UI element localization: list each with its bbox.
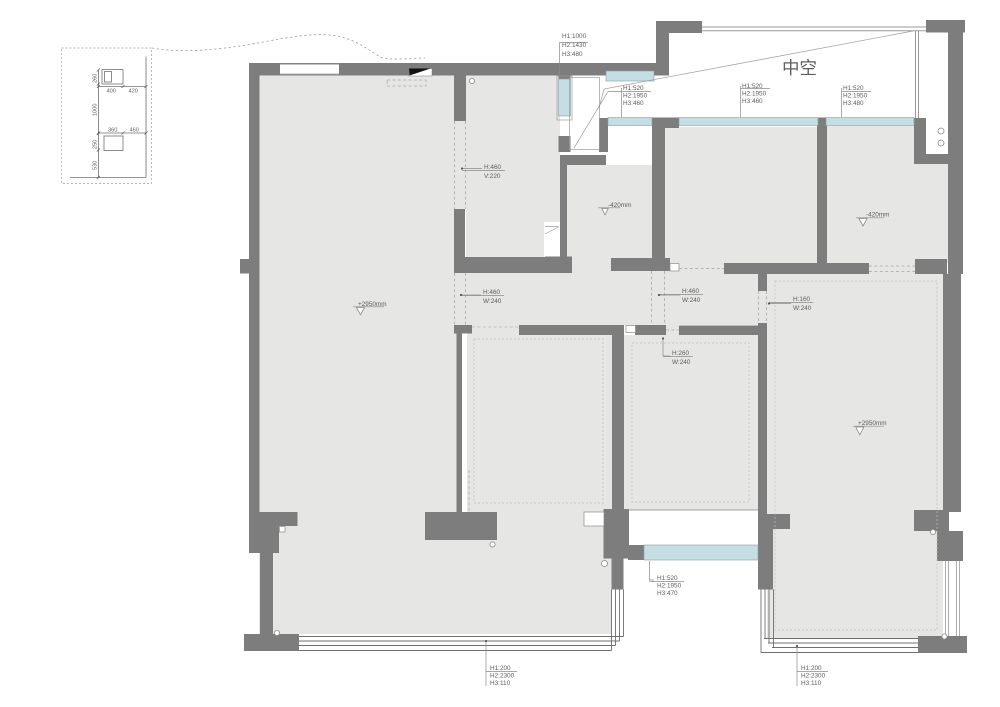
svg-text:H:260: H:260 (672, 350, 689, 357)
svg-text:H3:460: H3:460 (742, 98, 763, 105)
svg-text:+2950mm: +2950mm (858, 420, 887, 427)
svg-text:530: 530 (92, 161, 98, 170)
svg-text:V:220: V:220 (484, 173, 501, 180)
svg-text:H1:520: H1:520 (657, 575, 678, 582)
svg-text:H1:200: H1:200 (490, 665, 511, 672)
svg-text:-420mm: -420mm (866, 212, 889, 219)
svg-text:H:160: H:160 (793, 296, 810, 303)
svg-text:1000: 1000 (92, 104, 98, 116)
svg-text:+2950mm: +2950mm (358, 301, 387, 308)
svg-text:H2:2300: H2:2300 (801, 673, 826, 680)
svg-text:400: 400 (107, 89, 116, 95)
svg-text:H2:1950: H2:1950 (657, 583, 682, 590)
svg-text:H2:1950: H2:1950 (623, 93, 648, 100)
svg-text:W:240: W:240 (682, 297, 701, 304)
svg-text:H:460: H:460 (483, 289, 500, 296)
svg-text:H3:480: H3:480 (562, 51, 583, 58)
svg-text:-420mm: -420mm (608, 202, 631, 209)
svg-text:H1:520: H1:520 (623, 85, 644, 92)
svg-text:H1:520: H1:520 (742, 83, 763, 90)
svg-text:250: 250 (92, 140, 98, 149)
svg-text:H:460: H:460 (484, 164, 501, 171)
svg-text:H2:1430: H2:1430 (562, 42, 587, 49)
svg-text:H3:460: H3:460 (623, 100, 644, 107)
svg-text:H3:110: H3:110 (490, 680, 511, 687)
svg-text:360: 360 (108, 127, 117, 133)
svg-text:H1:1000: H1:1000 (562, 33, 587, 40)
svg-text:W:240: W:240 (672, 359, 691, 366)
svg-text:H3:110: H3:110 (801, 680, 822, 687)
svg-text:260: 260 (92, 74, 98, 83)
svg-text:H1:200: H1:200 (801, 665, 822, 672)
svg-text:H2:2300: H2:2300 (490, 673, 515, 680)
svg-text:H1:520: H1:520 (843, 85, 864, 92)
svg-text:W:240: W:240 (793, 305, 812, 312)
svg-text:H2:1950: H2:1950 (843, 93, 868, 100)
svg-text:H:460: H:460 (682, 288, 699, 295)
svg-text:460: 460 (130, 127, 139, 133)
svg-text:W:240: W:240 (483, 298, 502, 305)
svg-text:H2:1950: H2:1950 (742, 91, 767, 98)
svg-text:H3:470: H3:470 (657, 590, 678, 597)
svg-text:420: 420 (129, 89, 138, 95)
svg-text:中空: 中空 (782, 58, 817, 78)
svg-text:H3:480: H3:480 (843, 100, 864, 107)
